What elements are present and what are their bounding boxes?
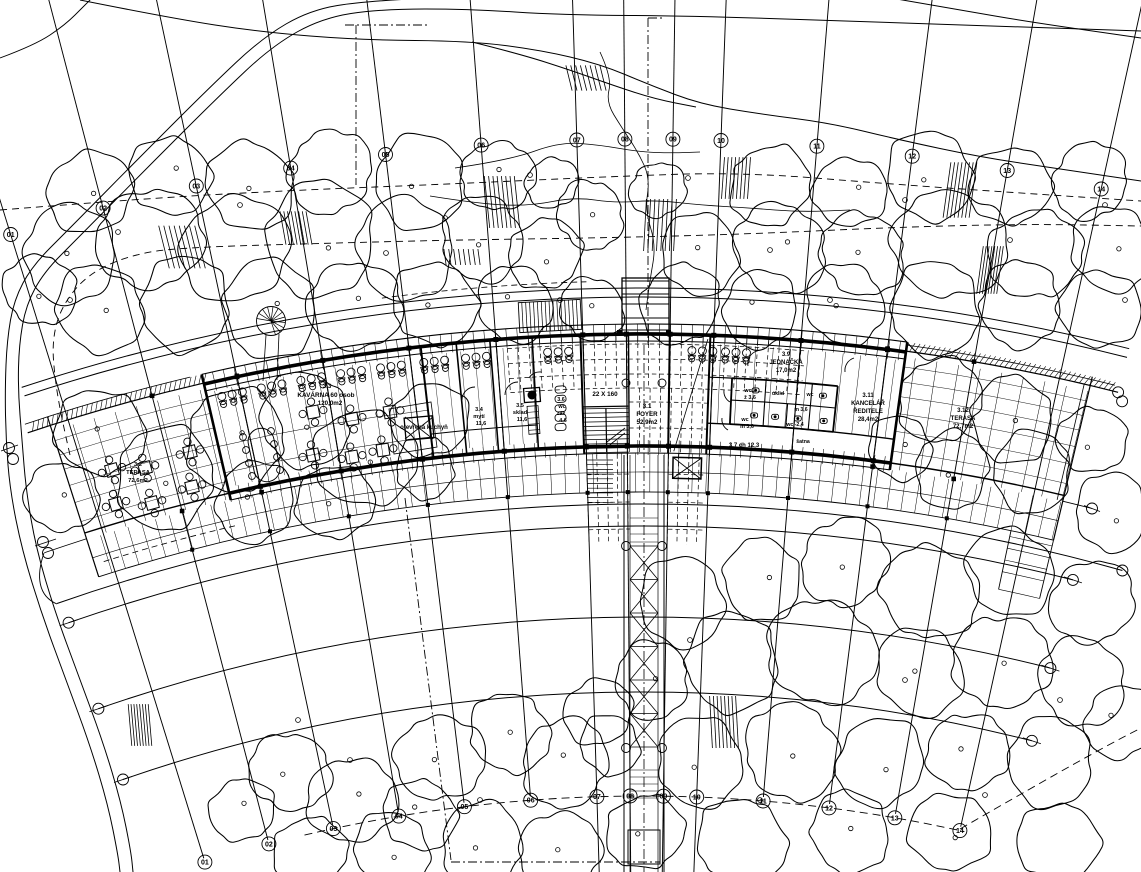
svg-text:11: 11: [813, 144, 821, 151]
svg-text:03: 03: [192, 184, 200, 191]
svg-text:JEDNAČKA: JEDNAČKA: [769, 359, 803, 366]
svg-text:ŘEDITELE: ŘEDITELE: [853, 407, 883, 415]
svg-text:13: 13: [1003, 168, 1011, 175]
svg-text:3.7 ch 12,3: 3.7 ch 12,3: [729, 443, 760, 449]
svg-text:12: 12: [908, 154, 916, 161]
svg-text:07: 07: [573, 138, 581, 145]
svg-text:KANCELÁŘ: KANCELÁŘ: [851, 399, 885, 407]
svg-text:13: 13: [891, 815, 899, 822]
svg-text:šatna: šatna: [796, 439, 810, 445]
svg-text:22 X 160: 22 X 160: [592, 391, 618, 398]
svg-text:otevřená kuchyň: otevřená kuchyň: [400, 425, 448, 431]
svg-text:ž 3,6: ž 3,6: [744, 395, 756, 401]
svg-text:52,9m2: 52,9m2: [637, 419, 659, 426]
svg-text:11,6: 11,6: [476, 421, 487, 427]
svg-text:09: 09: [669, 137, 677, 144]
svg-text:02: 02: [265, 841, 273, 848]
svg-text:120,0m2: 120,0m2: [318, 400, 343, 407]
svg-text:08: 08: [621, 137, 629, 144]
svg-text:mytí: mytí: [473, 414, 485, 420]
svg-text:72,7m2: 72,7m2: [953, 424, 974, 430]
svg-text:KAVÁRNA 60 osob: KAVÁRNA 60 osob: [297, 390, 354, 399]
svg-text:3.9: 3.9: [782, 352, 791, 358]
svg-text:14: 14: [1097, 187, 1105, 194]
svg-text:3.4: 3.4: [475, 407, 484, 413]
svg-text:07: 07: [593, 794, 601, 801]
svg-text:FOYER: FOYER: [636, 411, 658, 418]
svg-text:úklid: úklid: [772, 391, 784, 397]
svg-text:wc: wc: [743, 388, 751, 394]
svg-text:02: 02: [99, 206, 107, 213]
svg-text:10: 10: [717, 138, 725, 145]
svg-text:12: 12: [825, 805, 833, 812]
svg-text:3.3: 3.3: [323, 383, 332, 390]
svg-text:3.12: 3.12: [957, 408, 969, 414]
svg-text:wc: wc: [740, 417, 748, 423]
svg-text:01: 01: [201, 860, 209, 867]
svg-text:3.11: 3.11: [862, 393, 874, 399]
svg-text:06: 06: [527, 798, 535, 805]
svg-text:11,6: 11,6: [517, 417, 528, 423]
svg-text:10: 10: [693, 795, 701, 802]
svg-text:m 3,6: m 3,6: [794, 407, 807, 413]
svg-text:sklad: sklad: [513, 410, 528, 416]
svg-text:3.5: 3.5: [516, 403, 524, 409]
svg-text:01: 01: [7, 232, 15, 239]
svg-text:06: 06: [477, 143, 485, 150]
svg-text:17,0m2: 17,0m2: [776, 368, 797, 374]
svg-text:wc: wc: [806, 392, 814, 398]
